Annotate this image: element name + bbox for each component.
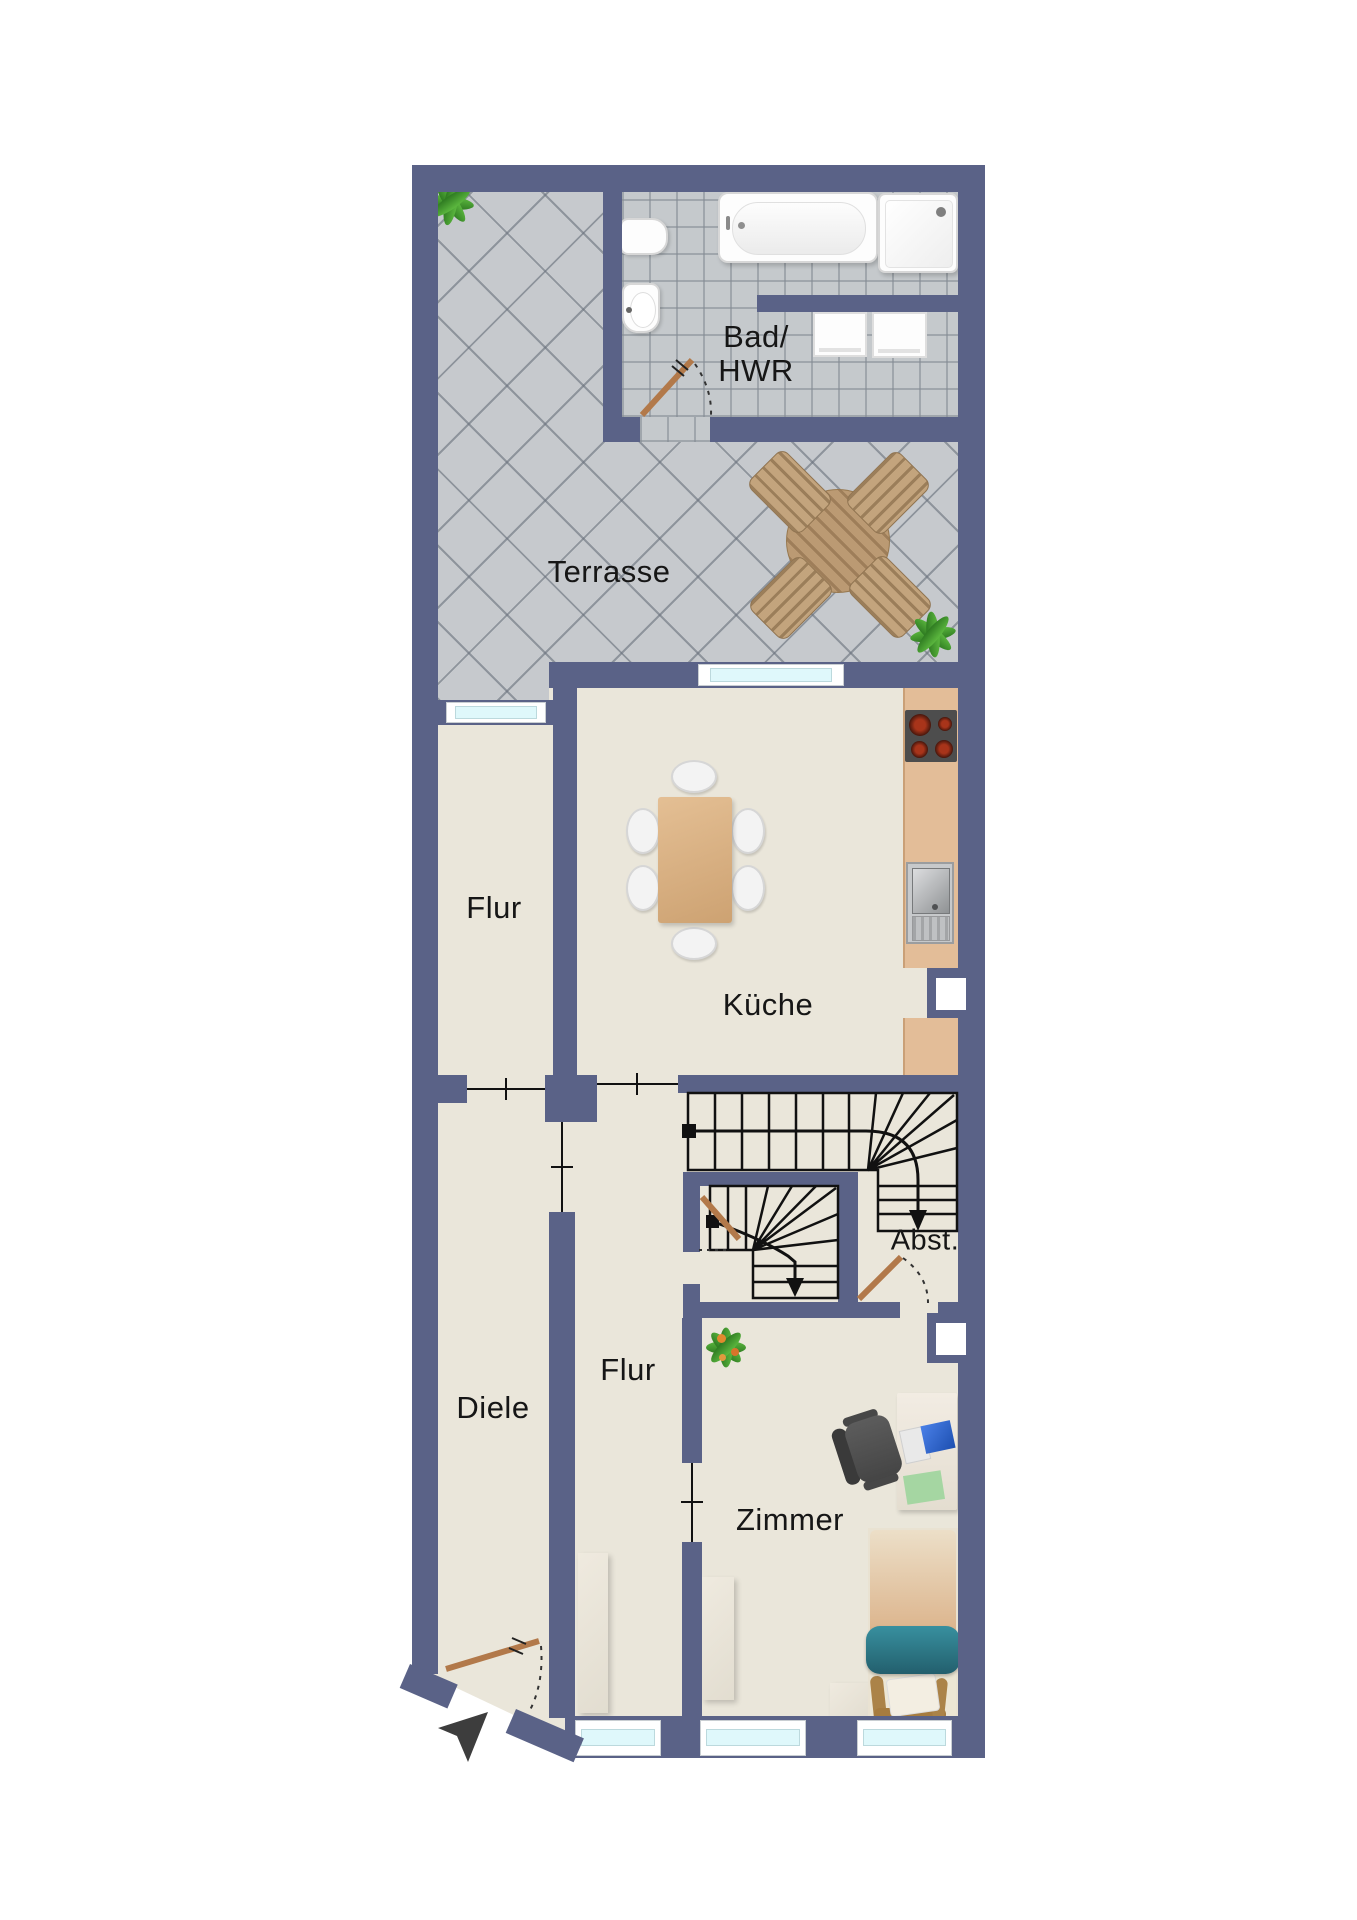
toilet — [620, 218, 668, 255]
room-label-diele: Diele — [456, 1390, 529, 1426]
dining-chair — [626, 865, 660, 911]
kitchen-sink-basin — [912, 868, 950, 914]
dining-chair — [731, 808, 765, 854]
nightstand — [830, 1683, 868, 1720]
label-bad: Bad/ — [723, 319, 789, 354]
wall-bath-bottom — [710, 417, 958, 442]
label-hwr: HWR — [718, 353, 794, 388]
label-diele: Diele — [456, 1390, 529, 1425]
room-label-abst: Abst. — [891, 1225, 960, 1258]
flower — [717, 1334, 726, 1343]
dining-chair — [626, 808, 660, 854]
wall-diele-flur-divider — [549, 1212, 575, 1718]
label-zimmer: Zimmer — [736, 1502, 844, 1537]
wall-mid-left — [412, 1075, 467, 1103]
bathtub-drain — [738, 222, 745, 229]
window-glass — [455, 706, 537, 719]
shower-drain — [936, 207, 946, 217]
wall-top — [412, 165, 985, 192]
label-kueche: Küche — [723, 987, 813, 1022]
bed — [868, 1528, 958, 1724]
wall-left — [412, 192, 438, 1674]
burner — [935, 740, 953, 758]
wall-bath-left — [603, 192, 622, 417]
desk — [897, 1393, 957, 1510]
kitchen-sink — [906, 862, 954, 944]
bed-pillow — [886, 1673, 941, 1718]
wall-flur-zimmer — [682, 1542, 702, 1718]
dining-chair — [731, 865, 765, 911]
shower-tray — [878, 193, 958, 273]
flowering-plant-icon — [705, 1324, 753, 1372]
room-label-bad-hwr: Bad/ HWR — [718, 320, 794, 388]
kitchen-sink-faucet — [932, 904, 938, 910]
burner — [911, 741, 928, 758]
bed-blanket — [866, 1626, 960, 1674]
wall-stair-enclosure-top — [683, 1172, 858, 1186]
burner — [909, 714, 931, 736]
bathtub-faucet — [726, 216, 730, 230]
burner — [938, 717, 952, 731]
room-label-flur-upper: Flur — [466, 890, 521, 926]
wardrobe — [702, 1577, 734, 1700]
label-abst: Abst. — [891, 1225, 960, 1257]
wall-hwr-divider — [757, 295, 958, 312]
stove — [905, 710, 957, 762]
wardrobe — [578, 1553, 608, 1713]
bathroom-door-sill — [640, 417, 710, 442]
niche-opening — [936, 978, 966, 1010]
wall-kueche-bottom — [678, 1075, 985, 1093]
flower — [719, 1354, 726, 1361]
wall-stair-enclosure-left — [683, 1186, 700, 1252]
sink-basin — [630, 292, 656, 328]
kitchen-sink-drainboard — [912, 916, 950, 941]
washing-machine — [813, 312, 867, 357]
floorplan-canvas: Bad/ HWR Terrasse Flur Küche Abst. Flur … — [0, 0, 1357, 1920]
bathroom-sink — [622, 283, 660, 333]
bed-mattress — [870, 1530, 956, 1632]
label-flur-upper: Flur — [466, 890, 521, 925]
window-glass — [710, 668, 832, 682]
label-terrasse: Terrasse — [548, 554, 671, 589]
dining-table — [658, 797, 732, 923]
washing-machine-panel — [878, 349, 920, 353]
dining-chair — [671, 927, 717, 960]
wall-flur-zimmer — [682, 1318, 702, 1463]
room-label-zimmer: Zimmer — [736, 1502, 844, 1538]
window-glass — [706, 1729, 800, 1746]
washing-machine — [872, 312, 927, 358]
laptop-screen — [920, 1420, 955, 1454]
exterior-mask — [405, 1748, 567, 1772]
room-label-terrasse: Terrasse — [548, 554, 671, 590]
bathtub — [718, 192, 878, 263]
bathtub-basin — [732, 202, 866, 255]
wall-bath-bottom-stub — [603, 417, 640, 442]
dining-chair — [671, 760, 717, 793]
sink-faucet — [626, 307, 632, 313]
room-label-kueche: Küche — [723, 987, 813, 1023]
room-label-flur-lower: Flur — [600, 1352, 655, 1388]
label-flur-lower: Flur — [600, 1352, 655, 1387]
flower — [731, 1348, 739, 1356]
wall-mid-block — [545, 1075, 597, 1122]
plant-icon — [909, 612, 957, 658]
window-glass — [581, 1729, 655, 1746]
niche-opening — [936, 1323, 966, 1355]
wall-flur-kueche-divider — [553, 688, 577, 1075]
kitchen-counter — [903, 1018, 958, 1075]
window-glass — [863, 1729, 946, 1746]
wall-stair-enclosure-right — [838, 1186, 858, 1302]
washing-machine-panel — [819, 348, 861, 352]
wall-stair-enclosure-bottom — [683, 1302, 900, 1318]
